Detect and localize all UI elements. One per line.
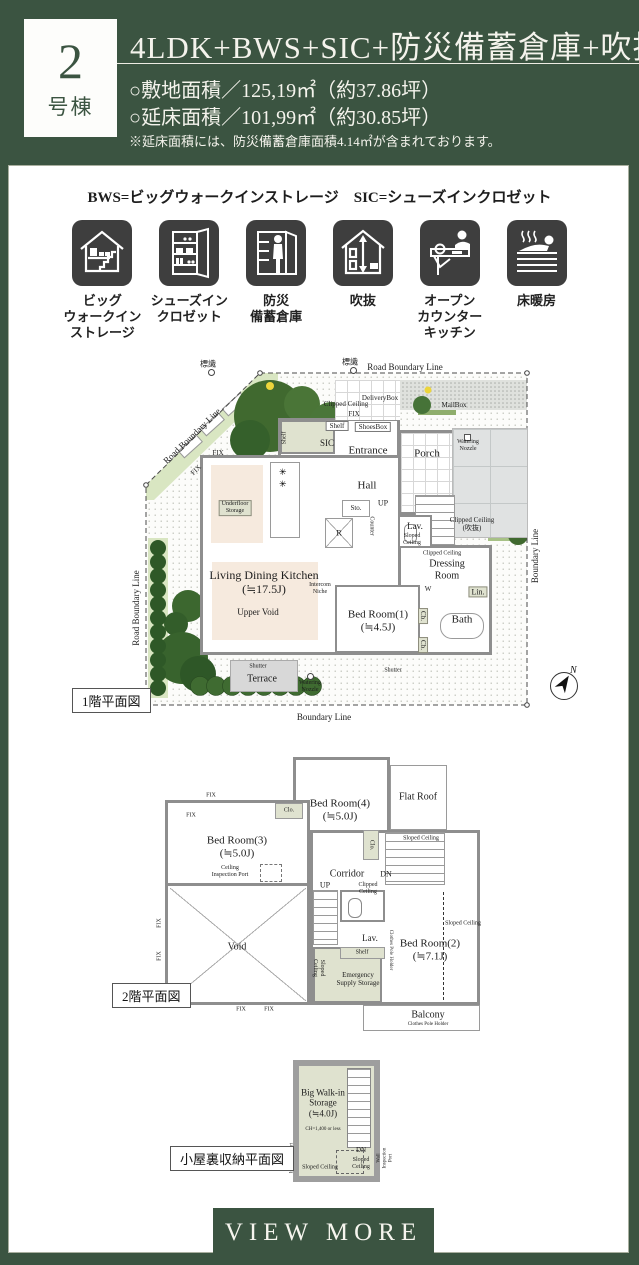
attic-plan: Big Walk-in Storage (≒4.0J) CH=1,400 or … [168, 1058, 398, 1184]
intercom-niche-label: Intercom Niche [309, 582, 331, 596]
kitchen-counter: ✳ ✳ [270, 462, 300, 538]
dn-label: DN [380, 869, 392, 878]
shutter-label: Shutter [384, 668, 401, 675]
sloped-ceiling-label: Sloped Ceiling [311, 959, 325, 977]
bath-label: Bath [452, 614, 473, 627]
clothes-pole-label: Clothes Pole Holder [387, 930, 393, 971]
closet-label: Clo. [368, 840, 375, 850]
shelf-label: Shelf [282, 432, 289, 445]
shoes-box-label: ShoesBox [355, 422, 391, 432]
sic-label: SIC [320, 438, 334, 448]
shelf-label: Shelf [356, 950, 369, 957]
sloped-ceiling-label: Sloped Ceiling [445, 921, 481, 928]
fix-label: FIX [236, 1007, 246, 1014]
dn-label: DN [356, 1146, 366, 1154]
feature-disaster-storage: 防災 備蓄倉庫 [233, 220, 320, 341]
attic-plan-label: 小屋裏収納平面図 [170, 1146, 294, 1171]
terrace-label: Terrace [247, 673, 277, 685]
feature-open-counter-kitchen: オープン カウンター キッチン [406, 220, 493, 341]
bedroom1-label: Bed Room(1) (≒4.5J) [348, 608, 408, 633]
building-number-suffix: 号棟 [48, 91, 94, 121]
washer-label: W [425, 585, 432, 593]
cabinet-label: Cb. [418, 637, 428, 653]
feature-label: 防災 備蓄倉庫 [233, 293, 320, 325]
feature-icon-row: ビッグ ウォークイン ストレージ シューズイン クロゼット [59, 220, 580, 341]
page-title: 4LDK+BWS+SIC+防災備蓄倉庫+吹抜 [130, 22, 639, 67]
north-label: N [570, 665, 577, 676]
underfloor-storage-label: Underfloor Storage [219, 500, 252, 516]
feature-label: オープン カウンター キッチン [406, 293, 493, 341]
flat-roof-label: Flat Roof [399, 791, 437, 803]
up-label: UP [378, 498, 388, 507]
disaster-storage-icon [246, 220, 306, 286]
linen-label: Lin. [468, 586, 487, 597]
clipped-ceiling-label: Clipped Ceiling [324, 400, 369, 408]
feature-label: 床暖房 [493, 293, 580, 309]
refrigerator-label: R [336, 528, 341, 537]
bedroom3-void-wall [168, 883, 307, 886]
inspection-port-box [260, 864, 282, 882]
ceiling-inspection-label: Ceiling Inspection Port [212, 865, 249, 879]
floor-area-text: ○延床面積／101,99㎡（約30.85坪） [129, 101, 441, 130]
fix-label: FIX [157, 951, 164, 961]
page: 2 号棟 4LDK+BWS+SIC+防災備蓄倉庫+吹抜 ○敷地面積／125,19… [0, 0, 639, 1265]
feature-shoes-in-closet: シューズイン クロゼット [146, 220, 233, 341]
boundary-right-label: Boundary Line [530, 529, 540, 583]
bedroom4-label: Bed Room(4) (≒5.0J) [310, 797, 370, 822]
shutter-label: Shutter [249, 664, 266, 671]
clothes-pole-label: Clothes Pole Holder [408, 1022, 449, 1028]
abbreviation-legend: BWS=ビッグウォークインストレージ SIC=シューズインクロゼット [0, 186, 639, 207]
compass-icon: N [550, 668, 580, 698]
big-walk-in-storage-icon [72, 220, 132, 286]
hall-label: Hall [358, 480, 377, 493]
area-note-text: ※延床面積には、防災備蓄倉庫面積4.14㎡が含まれております。 [129, 131, 501, 150]
road-boundary-left-label: Road Boundary Line [131, 570, 141, 646]
bedroom3-label: Bed Room(3) (≒5.0J) [207, 834, 267, 859]
fix-label: FIX [157, 918, 164, 928]
feature-big-walk-in-storage: ビッグ ウォークイン ストレージ [59, 220, 146, 341]
clipped-ceiling-label: Clipped Ceiling [359, 882, 378, 896]
floor2-plan: Bed Room(4) (≒5.0J) Flat Roof Bed Room(3… [108, 752, 498, 1042]
sign-label: 標識 [200, 359, 216, 368]
cabinet-label: Cb. [418, 608, 428, 624]
floor1-plan: ✳ ✳ 標識 標識 Road Boundary Line Road Bounda… [70, 358, 636, 724]
upper-void-label: Upper Void [237, 607, 278, 617]
watering-nozzle-label: Watering Nozzle [299, 680, 321, 694]
bedroom2-label: Bed Room(2) (≒7.1J) [400, 937, 460, 962]
watering-nozzle-label: Watering Nozzle [457, 439, 479, 453]
sign-marker [350, 367, 357, 374]
corridor-label: Corridor [330, 868, 364, 880]
up-label: UP [320, 880, 330, 889]
fix-label: FIX [264, 1007, 274, 1014]
lav-label: Lav. [362, 933, 378, 943]
fix-label: FIX [348, 410, 359, 418]
big-walk-in-storage-label: Big Walk-in Storage (≒4.0J) [301, 1087, 345, 1118]
ldk-label: Living Dining Kitchen (≒17.5J) [209, 569, 318, 597]
feature-open-ceiling: 吹抜 [319, 220, 406, 341]
floor2-plan-label: 2階平面図 [112, 983, 191, 1008]
boundary-bottom-label: Boundary Line [297, 712, 351, 722]
mail-box-label: MailBox [442, 401, 467, 409]
dressing-room-label: Dressing Room [429, 559, 465, 582]
watering-nozzle-marker [307, 673, 314, 680]
floor-heating-icon [507, 220, 567, 286]
site-area-text: ○敷地面積／125,19㎡（約37.86坪） [129, 74, 441, 103]
sloped-ceiling-label: Sloped Ceiling [352, 1157, 370, 1171]
void-label: Void [228, 941, 247, 953]
title-underline [117, 63, 639, 64]
feature-label: シューズイン クロゼット [146, 293, 233, 325]
building-number: 2 [58, 35, 83, 87]
sloped-ceiling-label: Sloped Ceiling [403, 836, 439, 843]
feature-label: 吹抜 [319, 293, 406, 309]
stairwell [313, 890, 338, 945]
sign-marker [208, 369, 215, 376]
lav-label: Lav. [407, 521, 423, 531]
wall-inspection-label: Wall Inspection Port [376, 1148, 393, 1169]
fix-label: FIX [186, 813, 196, 820]
counter-label: Counter [368, 516, 375, 535]
clipped-ceiling-label: Clipped Ceiling [423, 551, 461, 558]
sign-label: 標識 [342, 357, 358, 366]
balcony-label: Balcony [411, 1009, 444, 1021]
shelf-label: Shelf [326, 421, 349, 431]
sloped-ceiling-label: Sloped Ceiling [403, 533, 421, 547]
view-more-button[interactable]: VIEW MORE [213, 1208, 434, 1265]
shoes-in-closet-icon [159, 220, 219, 286]
attic-stairs [347, 1068, 371, 1148]
ceiling-height-label: CH=1,400 or less [305, 1127, 340, 1133]
emergency-storage-label: Emergency Supply Storage [337, 971, 380, 987]
fix-label: FIX [206, 793, 216, 800]
building-number-badge: 2 号棟 [24, 19, 117, 137]
porch-label: Porch [414, 448, 440, 461]
feature-label: ビッグ ウォークイン ストレージ [59, 293, 146, 341]
sto-label: Sto. [350, 504, 361, 512]
fix-label: FIX [212, 449, 223, 457]
floor1-plan-label: 1階平面図 [72, 688, 151, 713]
open-counter-kitchen-icon [420, 220, 480, 286]
clipped-ceiling-void-label: Clipped Ceiling (吹抜) [450, 516, 495, 532]
open-ceiling-icon [333, 220, 393, 286]
closet-label: Clo. [284, 808, 294, 815]
feature-floor-heating: 床暖房 [493, 220, 580, 341]
road-boundary-top-label: Road Boundary Line [367, 362, 443, 372]
sloped-ceiling-label: Sloped Ceiling [302, 1165, 338, 1172]
entrance-label: Entrance [348, 445, 387, 458]
